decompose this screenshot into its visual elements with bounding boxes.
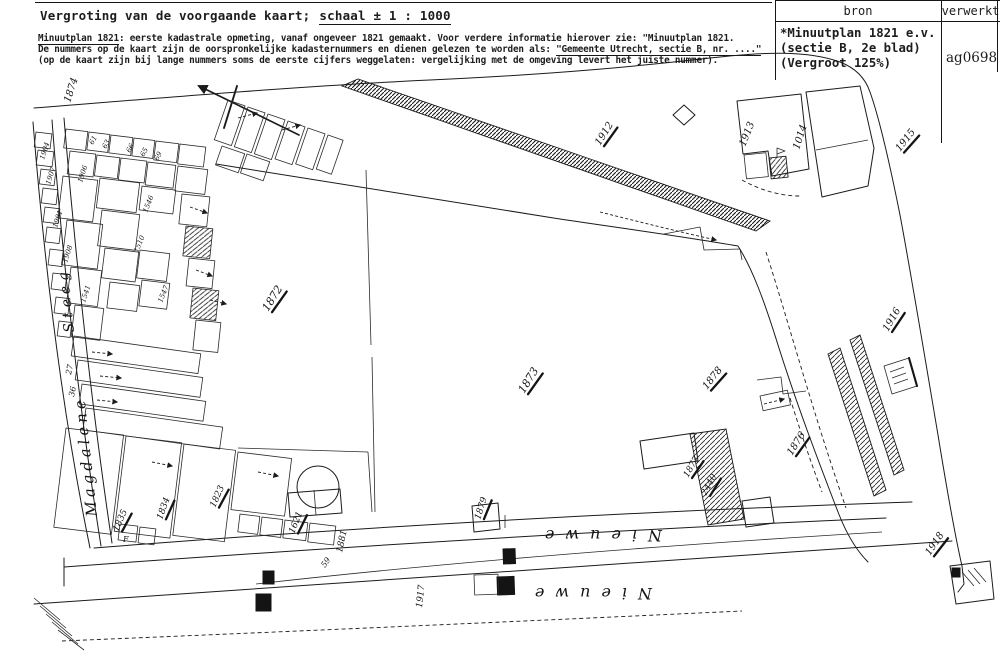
building-cluster-top-right xyxy=(673,86,874,197)
road-hatched-band xyxy=(342,79,770,231)
parcel-block-north-rows xyxy=(64,129,208,194)
parcel-label-65: 65 xyxy=(139,146,151,158)
parcel-label-1546: 1546 xyxy=(141,194,155,214)
parcel-block-wedge xyxy=(214,100,343,181)
parcel-label-1901: 1901 xyxy=(51,209,64,228)
junction-step-lines xyxy=(664,227,742,260)
junction-dashed-arrow xyxy=(600,212,716,240)
parcel-label-36: 36 xyxy=(67,386,78,398)
road-centerline-dashed xyxy=(766,252,846,508)
parcel-block-east-strip xyxy=(179,194,221,352)
building-circle-group xyxy=(288,466,342,517)
parcel-label-1541: 1541 xyxy=(79,284,92,303)
parcel-label-1874: 1874 xyxy=(62,76,80,104)
parcel-label-F: F xyxy=(122,535,129,544)
parcel-label-1906: 1906 xyxy=(76,164,89,184)
road-inner-edge xyxy=(216,164,868,562)
diamond-marker xyxy=(673,105,695,125)
north-arrow xyxy=(199,86,299,135)
parcel-label-66: 66 xyxy=(125,142,137,154)
parcel-label-1917: 1917 xyxy=(415,584,427,608)
parcel-rows-middle xyxy=(71,336,222,449)
cadastral-map: MagdaleneSteegNieuweNieuwe18741872187319… xyxy=(0,0,1000,655)
parcel-label-1881: 1881 xyxy=(335,529,350,553)
building-bottom-right xyxy=(950,561,994,604)
street-label-Magdalene: Magdalene xyxy=(70,396,101,519)
corner-hatching xyxy=(34,598,84,650)
parcel-label-1904: 1904 xyxy=(38,141,51,160)
roadside-ditches xyxy=(828,335,904,496)
street-label-Nieuwe: Nieuwe xyxy=(524,584,653,603)
building-small-right xyxy=(884,358,917,394)
street-label-Nieuwe: Nieuwe xyxy=(534,526,663,545)
parcel-label-27: 27 xyxy=(64,363,75,377)
parcel-label-61: 61 xyxy=(88,134,99,146)
parcel-label-1913: 1913 xyxy=(738,120,758,148)
parcel-label-59: 59 xyxy=(319,556,332,570)
